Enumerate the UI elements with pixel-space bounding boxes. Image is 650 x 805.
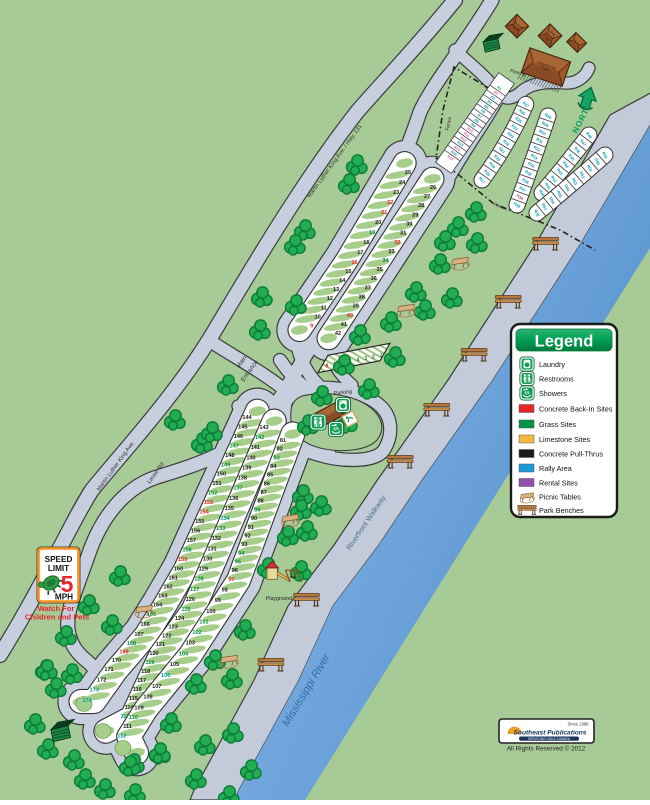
svg-text:40: 40 — [347, 313, 353, 319]
svg-text:16: 16 — [351, 260, 357, 266]
svg-text:96: 96 — [232, 568, 238, 574]
svg-text:9: 9 — [310, 323, 313, 329]
svg-text:Rental Sites: Rental Sites — [539, 478, 578, 487]
svg-text:82: 82 — [277, 447, 283, 453]
svg-text:136: 136 — [229, 496, 238, 502]
svg-text:91: 91 — [248, 525, 254, 531]
svg-text:137: 137 — [233, 486, 242, 492]
svg-text:150: 150 — [217, 472, 226, 478]
svg-text:Concrete Pull-Thrus: Concrete Pull-Thrus — [539, 449, 603, 458]
svg-text:139: 139 — [242, 465, 251, 471]
svg-text:2: 2 — [372, 354, 375, 360]
svg-text:102: 102 — [192, 630, 201, 636]
svg-text:Rally Area: Rally Area — [539, 464, 572, 473]
svg-text:112: 112 — [117, 733, 126, 739]
svg-text:134: 134 — [220, 516, 230, 522]
svg-text:27: 27 — [424, 194, 430, 200]
svg-text:95: 95 — [235, 559, 241, 565]
svg-text:111: 111 — [123, 724, 132, 730]
svg-text:Southeast Publications: Southeast Publications — [514, 730, 587, 737]
svg-text:Restrooms: Restrooms — [539, 374, 574, 383]
svg-text:118: 118 — [141, 669, 150, 675]
svg-text:116: 116 — [133, 687, 142, 693]
svg-text:131: 131 — [207, 546, 216, 552]
svg-text:Concrete Back-In Sites: Concrete Back-In Sites — [539, 404, 613, 413]
svg-text:Playground: Playground — [266, 596, 292, 602]
svg-text:11: 11 — [321, 305, 327, 311]
svg-text:22: 22 — [387, 200, 393, 206]
svg-text:120: 120 — [149, 651, 158, 657]
svg-text:168: 168 — [127, 641, 136, 647]
svg-text:132: 132 — [212, 536, 221, 542]
svg-text:110: 110 — [129, 715, 138, 721]
svg-text:Showers: Showers — [539, 389, 567, 398]
svg-text:92: 92 — [244, 533, 250, 539]
svg-text:85: 85 — [267, 473, 273, 479]
svg-text:147: 147 — [229, 443, 238, 449]
svg-text:35: 35 — [376, 267, 382, 273]
svg-text:174: 174 — [82, 698, 92, 704]
svg-text:130: 130 — [203, 556, 212, 562]
svg-text:18: 18 — [363, 240, 369, 246]
svg-text:135: 135 — [225, 506, 234, 512]
svg-text:141: 141 — [251, 445, 260, 451]
svg-text:166: 166 — [141, 622, 150, 628]
svg-text:157: 157 — [187, 538, 196, 544]
svg-text:101: 101 — [199, 619, 208, 625]
svg-text:122: 122 — [162, 633, 171, 639]
svg-text:84: 84 — [270, 464, 277, 470]
svg-text:109: 109 — [134, 706, 143, 712]
svg-text:Legend: Legend — [535, 333, 594, 351]
svg-text:34: 34 — [382, 258, 389, 264]
svg-text:Limestone Sites: Limestone Sites — [539, 435, 591, 444]
svg-text:173: 173 — [90, 688, 99, 694]
svg-text:133: 133 — [216, 526, 225, 532]
svg-text:1: 1 — [380, 353, 383, 359]
svg-text:163: 163 — [158, 593, 167, 599]
svg-text:151: 151 — [212, 481, 221, 487]
svg-text:4: 4 — [357, 357, 360, 363]
svg-text:13: 13 — [333, 287, 339, 293]
svg-text:149: 149 — [221, 462, 230, 468]
svg-text:123: 123 — [169, 625, 178, 631]
svg-text:125: 125 — [181, 607, 190, 613]
svg-text:83: 83 — [273, 455, 279, 461]
svg-text:Since 1986: Since 1986 — [568, 722, 590, 727]
svg-text:90: 90 — [251, 516, 257, 522]
svg-text:169: 169 — [119, 650, 128, 656]
svg-text:159: 159 — [178, 557, 187, 563]
svg-text:170: 170 — [112, 658, 121, 664]
svg-text:143: 143 — [259, 425, 268, 431]
svg-text:Grass Sites: Grass Sites — [539, 420, 577, 429]
svg-text:144: 144 — [242, 415, 252, 421]
svg-text:128: 128 — [194, 577, 203, 583]
svg-text:172: 172 — [97, 677, 106, 683]
svg-text:15: 15 — [345, 269, 351, 275]
svg-text:17: 17 — [357, 250, 363, 256]
svg-text:108: 108 — [143, 695, 152, 701]
svg-text:All Rights Reserved © 2012: All Rights Reserved © 2012 — [507, 745, 586, 753]
svg-text:156: 156 — [191, 529, 200, 535]
svg-text:161: 161 — [169, 575, 178, 581]
svg-text:12: 12 — [327, 296, 333, 302]
svg-text:Park Benches: Park Benches — [539, 506, 584, 515]
svg-text:97: 97 — [228, 577, 234, 583]
svg-text:3: 3 — [364, 356, 367, 362]
svg-text:25: 25 — [405, 170, 411, 176]
svg-text:29: 29 — [412, 212, 418, 218]
svg-text:8: 8 — [326, 363, 329, 369]
svg-text:30: 30 — [406, 222, 412, 228]
svg-text:36: 36 — [370, 276, 376, 282]
svg-text:Children and Pets: Children and Pets — [25, 613, 90, 622]
svg-text:129: 129 — [199, 567, 208, 573]
svg-text:164: 164 — [153, 602, 163, 608]
svg-text:138: 138 — [238, 476, 247, 482]
svg-text:167: 167 — [134, 632, 143, 638]
svg-text:155: 155 — [195, 519, 204, 525]
svg-text:Picnic Tables: Picnic Tables — [539, 492, 581, 501]
svg-text:MPH: MPH — [55, 593, 73, 602]
svg-text:Laundry: Laundry — [539, 360, 565, 369]
svg-text:42: 42 — [335, 331, 341, 337]
svg-text:89: 89 — [254, 507, 260, 513]
svg-text:32: 32 — [394, 240, 400, 246]
svg-text:121: 121 — [156, 642, 165, 648]
svg-text:148: 148 — [225, 453, 234, 459]
svg-text:105: 105 — [170, 662, 179, 668]
svg-text:171: 171 — [104, 667, 113, 673]
svg-text:23: 23 — [393, 190, 399, 196]
svg-text:126: 126 — [186, 597, 195, 603]
svg-text:107: 107 — [152, 684, 161, 690]
svg-text:140: 140 — [246, 455, 255, 461]
svg-text:81: 81 — [280, 438, 286, 444]
svg-text:160: 160 — [174, 566, 183, 572]
svg-text:154: 154 — [199, 510, 209, 516]
svg-text:21: 21 — [381, 210, 387, 216]
svg-text:86: 86 — [264, 481, 270, 487]
svg-text:145: 145 — [238, 425, 247, 431]
svg-text:93: 93 — [241, 542, 247, 548]
svg-text:20: 20 — [375, 220, 381, 226]
svg-text:14: 14 — [339, 278, 346, 284]
svg-text:153: 153 — [204, 500, 213, 506]
svg-text:SPEED: SPEED — [45, 555, 73, 564]
svg-text:142: 142 — [255, 435, 264, 441]
svg-text:SERVICING USA & CANADA: SERVICING USA & CANADA — [528, 737, 571, 741]
svg-text:146: 146 — [234, 434, 243, 440]
svg-text:106: 106 — [161, 673, 170, 679]
svg-text:24: 24 — [399, 180, 406, 186]
svg-text:33: 33 — [388, 249, 394, 255]
svg-text:100: 100 — [206, 609, 215, 615]
svg-text:119: 119 — [145, 660, 154, 666]
svg-text:98: 98 — [221, 588, 227, 594]
svg-text:158: 158 — [182, 547, 191, 553]
svg-text:124: 124 — [175, 616, 185, 622]
svg-text:38: 38 — [359, 295, 365, 301]
svg-text:41: 41 — [341, 322, 347, 328]
svg-text:87: 87 — [261, 490, 267, 496]
svg-text:103: 103 — [186, 641, 195, 647]
svg-text:37: 37 — [365, 285, 371, 291]
svg-text:39: 39 — [353, 304, 359, 310]
svg-text:162: 162 — [163, 584, 172, 590]
svg-text:26: 26 — [430, 185, 436, 191]
svg-text:10: 10 — [314, 314, 320, 320]
svg-text:94: 94 — [238, 551, 245, 557]
svg-text:19: 19 — [369, 230, 375, 236]
svg-text:28: 28 — [418, 203, 424, 209]
svg-text:88: 88 — [257, 499, 263, 505]
svg-text:99: 99 — [215, 598, 221, 604]
svg-text:117: 117 — [137, 678, 146, 684]
svg-text:152: 152 — [208, 491, 217, 497]
svg-text:127: 127 — [190, 587, 199, 593]
svg-text:104: 104 — [179, 651, 189, 657]
svg-text:31: 31 — [400, 231, 406, 237]
